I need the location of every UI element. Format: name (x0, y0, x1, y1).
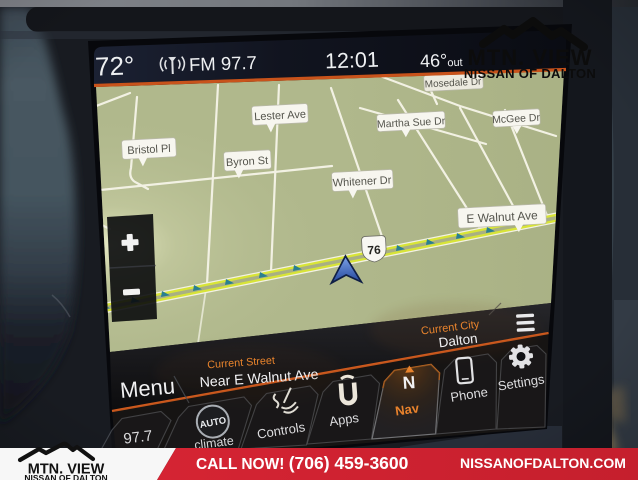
svg-text:NISSAN OF DALTON: NISSAN OF DALTON (464, 66, 596, 81)
svg-text:CALL NOW! (706) 459-3600: CALL NOW! (706) 459-3600 (196, 453, 409, 473)
svg-text:NISSANOFDALTON.COM: NISSANOFDALTON.COM (460, 455, 626, 471)
svg-text:NISSAN OF DALTON: NISSAN OF DALTON (24, 473, 107, 480)
